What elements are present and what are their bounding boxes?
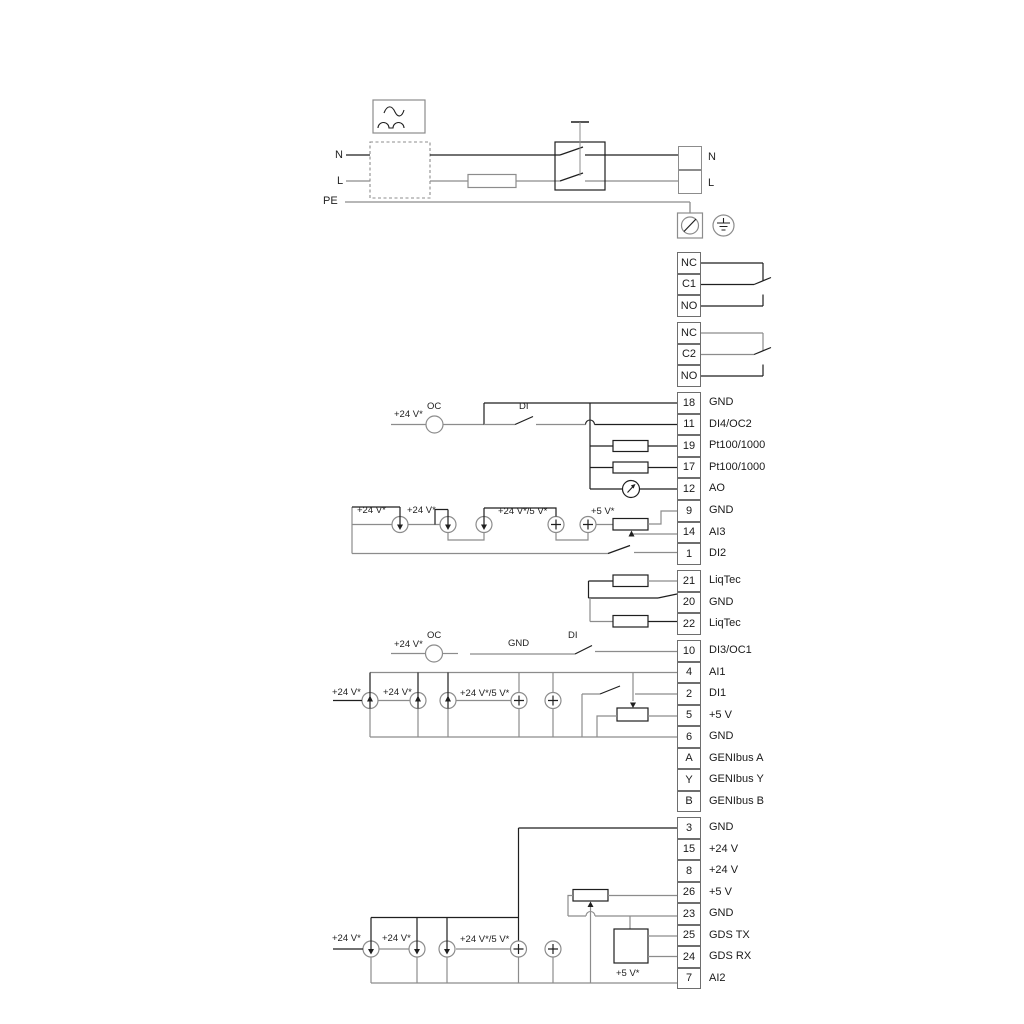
relay1-terminal-nc: NC (677, 252, 701, 274)
terminal-box: 23 (677, 903, 701, 925)
terminal-label: GND (709, 903, 733, 925)
relay2-terminal-c2: C2 (677, 344, 701, 366)
sine-filter-box (373, 100, 425, 133)
terminal-label: DI1 (709, 683, 726, 705)
terminal-box: 24 (677, 946, 701, 968)
terminal-box: 14 (677, 522, 701, 544)
terminal-box: 1 (677, 543, 701, 565)
label-5v: +5 V* (616, 968, 640, 979)
terminal-label: AI2 (709, 968, 726, 990)
relay1-terminal-no: NO (677, 295, 701, 317)
label-24v: +24 V* (394, 639, 423, 650)
liqtec-section (589, 575, 678, 627)
open-collector-circle (426, 645, 443, 662)
wiper-arrow-icon (630, 703, 636, 709)
terminal-box: 11 (677, 414, 701, 436)
dashed-module-box (370, 142, 430, 198)
terminal-box: 25 (677, 925, 701, 947)
label-n-right: N (708, 151, 716, 163)
pt100-resistor-2 (613, 462, 648, 473)
terminal-label: AO (709, 478, 725, 500)
terminal-label: GENIbus Y (709, 769, 764, 791)
terminal-box: 5 (677, 705, 701, 727)
label-24v: +24 V* (394, 409, 423, 420)
di3-switch-blade (575, 646, 592, 655)
terminal-label: DI2 (709, 543, 726, 565)
terminal-label: GND (709, 726, 733, 748)
label-24v-5v: +24 V*/5 V* (460, 934, 509, 945)
relay2-wires (700, 333, 771, 376)
label-24v: +24 V* (332, 933, 361, 944)
terminal-box: 21 (677, 570, 701, 592)
open-collector-circle (426, 416, 443, 433)
terminal-label: DI4/OC2 (709, 414, 752, 436)
terminal-box: 22 (677, 613, 701, 635)
gds-module-box (614, 929, 648, 963)
terminal-label: +5 V (709, 882, 732, 904)
fuse-symbol (468, 175, 516, 188)
terminal-label: GENIbus A (709, 748, 763, 770)
pt100-resistor-1 (613, 441, 648, 452)
wiper-arrow-icon (588, 902, 594, 908)
terminal-box: 9 (677, 500, 701, 522)
terminal-box: 6 (677, 726, 701, 748)
label-24v: +24 V* (383, 687, 412, 698)
terminal-box: 8 (677, 860, 701, 882)
di4-section (391, 403, 677, 498)
terminal-label: +5 V (709, 705, 732, 727)
label-24v: +24 V* (407, 505, 436, 516)
label-pe: PE (323, 195, 338, 207)
label-di: DI (568, 630, 578, 641)
terminal-box: 3 (677, 817, 701, 839)
terminal-box: Y (677, 769, 701, 791)
label-n-left: N (335, 149, 343, 161)
terminal-box: 4 (677, 662, 701, 684)
terminal-label: LiqTec (709, 570, 741, 592)
di2-switch-blade (608, 546, 630, 554)
sine-wave-icon (384, 107, 404, 116)
terminal-label: GND (709, 392, 733, 414)
potentiometer-3 (573, 890, 608, 902)
terminal-box: 15 (677, 839, 701, 861)
terminal-label: GENIbus B (709, 791, 764, 813)
label-24v: +24 V* (382, 933, 411, 944)
di3-section (391, 645, 677, 662)
di1-switch-blade (600, 686, 620, 694)
di4-switch-blade (515, 417, 533, 425)
terminal-box: 12 (677, 478, 701, 500)
relay2-terminal-nc: NC (677, 322, 701, 344)
label-l-left: L (337, 175, 343, 187)
terminal-label: GDS TX (709, 925, 750, 947)
terminal-box: 26 (677, 882, 701, 904)
terminal-box: 19 (677, 435, 701, 457)
relay2-terminal-no: NO (677, 365, 701, 387)
terminal-box: 7 (677, 968, 701, 990)
label-24v-5v: +24 V*/5 V* (460, 688, 509, 699)
label-24v: +24 V* (332, 687, 361, 698)
power-terminal-l (678, 170, 702, 194)
terminal-label: +24 V (709, 860, 738, 882)
analog-row3 (333, 828, 677, 983)
liqtec-resistor-2 (613, 616, 648, 628)
terminal-label: GND (709, 592, 733, 614)
power-section (345, 100, 734, 238)
power-terminal-n (678, 146, 702, 170)
label-5v: +5 V* (591, 506, 615, 517)
terminal-box: 10 (677, 640, 701, 662)
terminal-box: 20 (677, 592, 701, 614)
half-wave-icon (378, 123, 404, 129)
label-oc: OC (427, 401, 441, 412)
terminal-label: GDS RX (709, 946, 751, 968)
terminal-box: 18 (677, 392, 701, 414)
terminal-label: GND (709, 500, 733, 522)
potentiometer-1 (613, 519, 648, 531)
potentiometer-2 (617, 708, 648, 721)
terminal-label: +24 V (709, 839, 738, 861)
wiring-diagram: N L PE N L NC C1 NO NC C2 NO 18 GND 11 D… (0, 0, 1024, 1024)
liqtec-resistor-1 (613, 575, 648, 587)
label-24v-5v: +24 V*/5 V* (498, 506, 547, 517)
relay1-terminal-c1: C1 (677, 274, 701, 296)
label-di: DI (519, 401, 529, 412)
terminal-label: LiqTec (709, 613, 741, 635)
terminal-label: DI3/OC1 (709, 640, 752, 662)
terminal-label: GND (709, 817, 733, 839)
label-gnd: GND (508, 638, 529, 649)
terminal-label: Pt100/1000 (709, 457, 765, 479)
label-24v: +24 V* (357, 505, 386, 516)
label-l-right: L (708, 177, 714, 189)
relay1-wires (700, 263, 771, 306)
terminal-label: AI3 (709, 522, 726, 544)
terminal-box: A (677, 748, 701, 770)
terminal-box: 2 (677, 683, 701, 705)
terminal-label: AI1 (709, 662, 726, 684)
analog-row2 (333, 673, 677, 738)
terminal-box: 17 (677, 457, 701, 479)
label-oc: OC (427, 630, 441, 641)
terminal-label: Pt100/1000 (709, 435, 765, 457)
terminal-box: B (677, 791, 701, 813)
